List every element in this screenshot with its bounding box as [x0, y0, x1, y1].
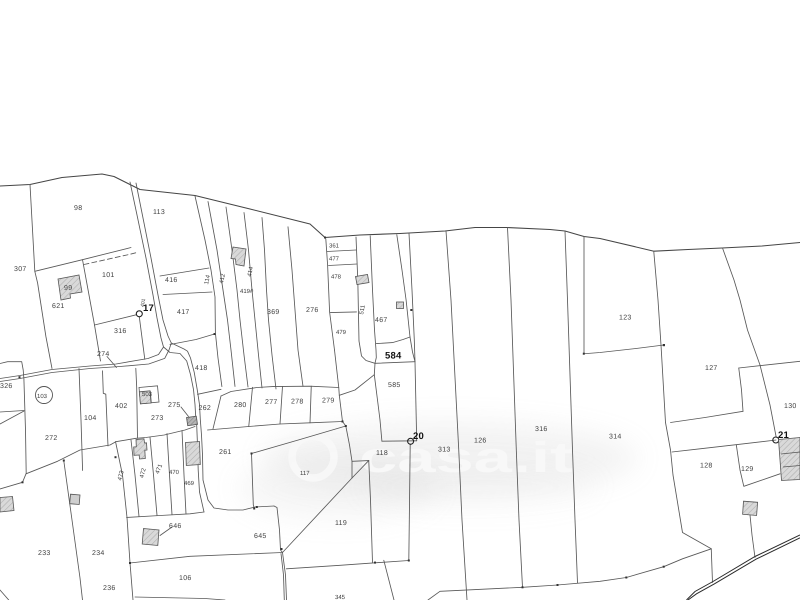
svg-text:316: 316: [535, 426, 548, 433]
svg-text:469: 469: [184, 480, 195, 487]
svg-text:472: 472: [138, 467, 148, 479]
svg-text:316: 316: [114, 328, 127, 335]
svg-text:118: 118: [376, 450, 388, 457]
svg-text:369: 369: [267, 309, 280, 316]
svg-text:236: 236: [103, 585, 116, 592]
svg-text:104: 104: [84, 415, 97, 422]
svg-text:470: 470: [169, 469, 180, 476]
svg-text:276: 276: [306, 307, 319, 314]
svg-text:361: 361: [329, 243, 340, 250]
svg-text:126: 126: [474, 438, 487, 445]
svg-text:278: 278: [291, 399, 304, 406]
svg-text:130: 130: [784, 403, 797, 410]
svg-text:326: 326: [0, 383, 13, 390]
svg-text:273: 273: [151, 415, 164, 422]
svg-text:584: 584: [385, 351, 402, 362]
svg-text:233: 233: [38, 550, 51, 557]
svg-text:101: 101: [102, 272, 115, 279]
svg-text:477: 477: [329, 256, 340, 263]
svg-text:99: 99: [64, 285, 72, 292]
svg-text:471: 471: [154, 462, 164, 474]
svg-text:402: 402: [115, 403, 128, 410]
svg-text:261: 261: [219, 449, 232, 456]
svg-text:585: 585: [388, 382, 401, 389]
svg-text:117: 117: [300, 470, 310, 477]
svg-text:307: 307: [14, 266, 27, 273]
svg-text:479: 479: [336, 329, 347, 336]
svg-text:113: 113: [153, 209, 165, 216]
svg-text:106: 106: [179, 575, 192, 582]
svg-text:128: 128: [700, 463, 713, 470]
svg-text:280: 280: [234, 402, 247, 409]
svg-text:103: 103: [37, 393, 48, 400]
svg-text:621: 621: [52, 303, 65, 310]
svg-text:511: 511: [358, 304, 367, 315]
svg-text:98: 98: [74, 205, 82, 212]
svg-text:645: 645: [254, 533, 267, 540]
svg-text:414: 414: [246, 265, 255, 277]
svg-text:478: 478: [331, 274, 342, 281]
svg-text:119: 119: [335, 520, 347, 527]
svg-text:272: 272: [45, 435, 58, 442]
svg-text:314: 314: [609, 434, 622, 441]
svg-text:646: 646: [169, 523, 182, 530]
svg-text:129: 129: [741, 466, 754, 473]
svg-text:274: 274: [97, 351, 110, 358]
svg-text:277: 277: [265, 399, 278, 406]
svg-text:419#: 419#: [240, 288, 254, 295]
svg-text:21: 21: [778, 430, 789, 441]
svg-text:467: 467: [375, 317, 388, 324]
svg-text:416: 416: [165, 277, 178, 284]
svg-text:473: 473: [116, 469, 126, 481]
svg-text:313: 313: [438, 447, 451, 454]
svg-text:262: 262: [199, 405, 212, 412]
svg-text:234: 234: [92, 550, 105, 557]
svg-text:275: 275: [168, 402, 181, 409]
svg-text:418: 418: [195, 365, 208, 372]
svg-text:123: 123: [619, 315, 632, 322]
svg-text:127: 127: [705, 365, 718, 372]
svg-text:412: 412: [218, 272, 227, 284]
svg-text:114: 114: [203, 274, 212, 285]
svg-text:417: 417: [177, 309, 190, 316]
svg-text:345: 345: [335, 594, 346, 600]
svg-text:503: 503: [142, 391, 153, 398]
svg-text:279: 279: [322, 398, 335, 405]
svg-text:17: 17: [143, 303, 154, 314]
svg-text:20: 20: [413, 431, 424, 442]
